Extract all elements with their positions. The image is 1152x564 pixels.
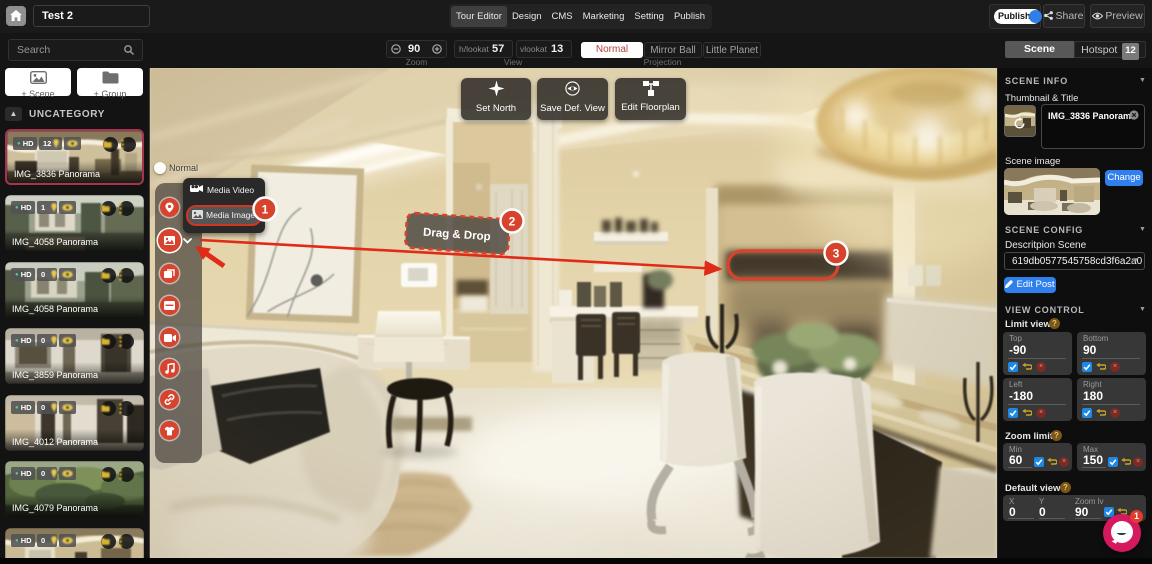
svg-text:3: 3 — [833, 247, 840, 261]
svg-text:2: 2 — [509, 215, 516, 229]
svg-text:1: 1 — [262, 203, 269, 217]
